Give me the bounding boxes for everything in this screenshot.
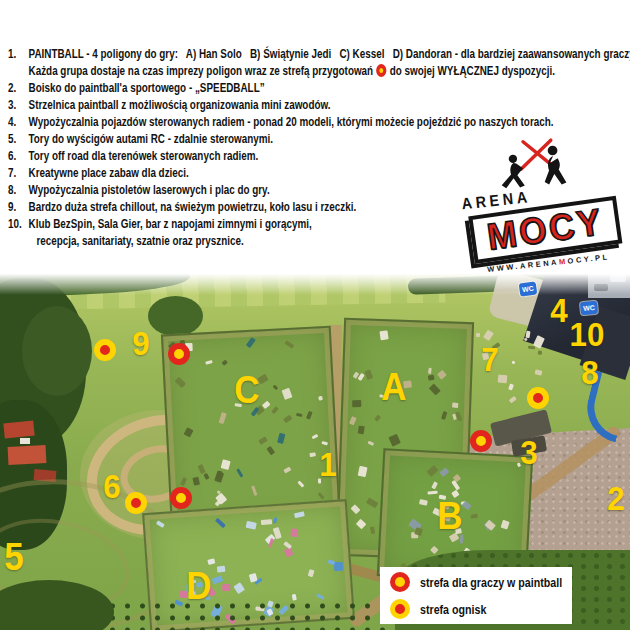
item-number: 3. bbox=[8, 97, 29, 114]
list-item: 2. Boisko do paintball'a sportowego - „S… bbox=[8, 80, 630, 97]
field-obstacle bbox=[431, 482, 438, 490]
field-obstacle bbox=[437, 369, 447, 379]
field-obstacle bbox=[175, 377, 186, 388]
field-obstacle bbox=[419, 499, 428, 506]
field-obstacle bbox=[370, 527, 375, 535]
field-obstacle bbox=[389, 434, 401, 446]
field-obstacle bbox=[352, 400, 361, 407]
item-number: 6. bbox=[8, 148, 29, 165]
arena-mocy-logo: ARENA MOCY WWW.ARENAMOCY.PL bbox=[446, 129, 630, 277]
field-obstacle bbox=[282, 415, 292, 424]
item-number: 5. bbox=[8, 131, 29, 148]
field-obstacle bbox=[439, 468, 449, 478]
field-obstacle bbox=[379, 395, 389, 400]
paintball-zone-icon bbox=[376, 64, 386, 77]
item-number: 1. bbox=[8, 46, 29, 80]
list-item: 4. Wypożyczalnia pojazdów sterowanych ra… bbox=[8, 114, 630, 131]
field-obstacle bbox=[509, 397, 517, 405]
item-text: PAINTBALL - 4 poligony do gry: A) Han So… bbox=[29, 46, 630, 63]
field-obstacle bbox=[212, 575, 223, 584]
field-obstacle bbox=[349, 416, 357, 426]
field-obstacle bbox=[168, 342, 178, 352]
field-obstacle bbox=[206, 360, 213, 365]
legend-label: strefa dla graczy w paintball bbox=[420, 575, 562, 590]
field-obstacle bbox=[246, 337, 256, 349]
field-obstacle bbox=[320, 441, 327, 446]
field-obstacle bbox=[485, 520, 497, 532]
trees bbox=[22, 306, 92, 396]
field-obstacle bbox=[439, 494, 447, 499]
field-obstacle bbox=[284, 467, 292, 474]
field-obstacle bbox=[442, 512, 452, 521]
field-obstacle bbox=[455, 528, 461, 534]
field-obstacle bbox=[414, 527, 423, 536]
field-obstacle bbox=[430, 546, 439, 555]
photo-top-fade bbox=[0, 270, 630, 295]
flyer-page: 1. PAINTBALL - 4 poligony do gry: A) Han… bbox=[0, 0, 630, 630]
field-obstacle bbox=[511, 361, 515, 365]
field-obstacle bbox=[215, 518, 226, 528]
field-obstacle bbox=[528, 345, 536, 349]
item-text: Każda grupa dostaje na czas imprezy poli… bbox=[29, 63, 630, 80]
field-obstacle bbox=[429, 384, 441, 396]
field-obstacle bbox=[180, 477, 187, 486]
field-obstacle bbox=[222, 584, 230, 592]
field-obstacle bbox=[308, 569, 315, 577]
field-obstacle bbox=[516, 463, 521, 468]
field-obstacle bbox=[492, 342, 501, 350]
field-obstacle bbox=[476, 333, 480, 337]
field-obstacle bbox=[266, 446, 275, 455]
fighter-silhouette bbox=[541, 145, 567, 187]
item-number: 7. bbox=[8, 165, 29, 182]
field-obstacle bbox=[523, 338, 527, 342]
fighter-silhouette bbox=[499, 154, 525, 190]
field-obstacle bbox=[278, 433, 286, 444]
list-item: 3. Strzelnica paintball z możliwością or… bbox=[8, 97, 630, 114]
field-obstacle bbox=[484, 330, 495, 341]
field-obstacle bbox=[459, 535, 463, 544]
field-obstacle bbox=[462, 501, 473, 511]
item-number: 10. bbox=[8, 216, 29, 250]
field-obstacle bbox=[443, 502, 451, 510]
field-obstacle bbox=[306, 411, 313, 420]
field-obstacle bbox=[440, 411, 447, 420]
field-obstacle bbox=[203, 473, 209, 480]
field-obstacle bbox=[451, 480, 460, 491]
field-obstacle bbox=[246, 521, 257, 530]
field-obstacle bbox=[534, 369, 542, 376]
field-obstacle bbox=[471, 513, 478, 518]
field-obstacle bbox=[155, 520, 164, 528]
field-obstacle bbox=[538, 351, 542, 356]
field-obstacle bbox=[186, 585, 194, 593]
field-obstacle bbox=[294, 511, 305, 518]
field-obstacle bbox=[316, 593, 325, 600]
field-obstacle bbox=[449, 532, 460, 542]
field-obstacle bbox=[379, 331, 389, 341]
playground-area bbox=[452, 328, 547, 420]
field-obstacle bbox=[318, 492, 325, 499]
field-obstacle bbox=[219, 413, 227, 425]
legend-item-paintball: strefa dla graczy w paintball bbox=[390, 572, 562, 592]
field-obstacle bbox=[271, 406, 279, 414]
hut bbox=[20, 438, 30, 444]
list-item: 1. PAINTBALL - 4 poligony do gry: A) Han… bbox=[8, 46, 630, 80]
item-number: 9. bbox=[8, 199, 29, 216]
item-text: Wypożyczalnia pojazdów sterowanych radie… bbox=[29, 114, 630, 131]
item-number: 4. bbox=[8, 114, 29, 131]
field-obstacle bbox=[261, 519, 272, 525]
field-obstacle bbox=[207, 559, 215, 565]
field-obstacle bbox=[508, 383, 514, 390]
field-obstacle bbox=[309, 452, 316, 457]
field-obstacle bbox=[235, 403, 242, 407]
red-roof-hut bbox=[3, 420, 34, 438]
field-obstacle bbox=[537, 391, 547, 400]
item-text: Strzelnica paintball z możliwością organ… bbox=[29, 97, 630, 114]
field-obstacle bbox=[196, 582, 203, 588]
field-obstacle bbox=[432, 508, 442, 517]
field-obstacle bbox=[318, 479, 321, 484]
field-obstacle bbox=[498, 375, 508, 384]
field-obstacle bbox=[427, 490, 438, 494]
field-obstacle bbox=[257, 373, 269, 384]
field-obstacle bbox=[350, 504, 360, 514]
field-obstacle bbox=[404, 380, 413, 388]
paintball-zone-icon bbox=[390, 572, 410, 592]
trees bbox=[148, 296, 203, 336]
item-number: 8. bbox=[8, 182, 29, 199]
field-obstacle bbox=[318, 396, 323, 401]
item-text: Boisko do paintball'a sportowego - „SPEE… bbox=[29, 80, 630, 97]
field-obstacle bbox=[358, 425, 365, 433]
field-obstacle bbox=[358, 466, 368, 477]
map-legend: strefa dla graczy w paintball strefa ogn… bbox=[380, 567, 572, 624]
field-obstacle bbox=[206, 586, 216, 597]
field-obstacle bbox=[427, 375, 434, 381]
field-obstacle bbox=[297, 481, 304, 489]
field-obstacle bbox=[334, 562, 344, 571]
field-obstacle bbox=[482, 353, 489, 361]
field-obstacle bbox=[296, 413, 302, 417]
field-obstacle bbox=[451, 489, 460, 498]
legend-label: strefa ognisk bbox=[420, 602, 486, 617]
bonfire-zone-icon bbox=[390, 599, 410, 619]
legend-item-bonfire: strefa ognisk bbox=[390, 599, 562, 619]
field-obstacle bbox=[236, 468, 243, 478]
field-obstacle bbox=[273, 384, 279, 390]
field-obstacle bbox=[273, 517, 278, 524]
field-obstacle bbox=[216, 566, 225, 573]
field-obstacle bbox=[290, 529, 298, 538]
item-number: 2. bbox=[8, 80, 29, 97]
field-obstacle bbox=[428, 368, 432, 374]
field-obstacle bbox=[364, 369, 373, 380]
field-obstacle bbox=[283, 541, 292, 549]
field-obstacle bbox=[501, 520, 510, 530]
field-obstacle bbox=[366, 498, 378, 508]
field-obstacle bbox=[356, 519, 367, 530]
field-obstacle bbox=[262, 400, 271, 408]
field-obstacle bbox=[312, 434, 319, 440]
field-obstacle bbox=[282, 388, 293, 400]
field-obstacle bbox=[251, 485, 257, 495]
field-obstacle bbox=[192, 476, 199, 485]
red-roof-hut bbox=[8, 445, 47, 465]
field-obstacle bbox=[221, 359, 227, 365]
field-obstacle bbox=[179, 340, 186, 349]
field-obstacle bbox=[183, 427, 193, 437]
field-obstacle bbox=[234, 582, 245, 594]
field-obstacle bbox=[374, 414, 381, 421]
field-obstacle bbox=[427, 465, 439, 477]
field-obstacle bbox=[220, 459, 230, 470]
field-obstacle bbox=[367, 441, 374, 446]
field-obstacle bbox=[215, 472, 224, 484]
field-obstacle bbox=[534, 335, 545, 348]
field-obstacle bbox=[258, 436, 267, 444]
field-obstacle bbox=[284, 340, 294, 348]
